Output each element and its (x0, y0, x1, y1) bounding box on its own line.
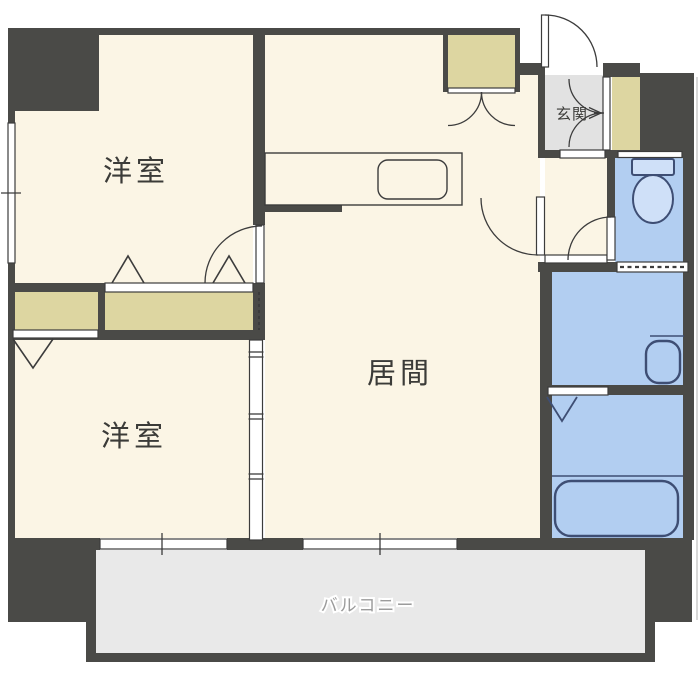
bathroom-sill (548, 387, 608, 395)
shoe-closet-front (603, 77, 610, 150)
wall-segment (253, 35, 265, 225)
closet-right (105, 292, 253, 330)
balcony-wall-bottom (86, 653, 655, 662)
shoe-closet (612, 77, 640, 150)
entrance-label: 玄関 (556, 106, 588, 123)
wall-segment (540, 272, 552, 538)
toilet-door-leaf (607, 217, 615, 260)
living-room-label: 居間 (367, 358, 433, 390)
bedroom-door-leaf (256, 225, 264, 283)
wall-segment (98, 292, 105, 330)
wall-segment (515, 28, 520, 92)
sliding-door-partition (249, 340, 264, 540)
window-bottom-left (100, 539, 227, 549)
living-room-door-leaf (537, 197, 545, 255)
wall-segment (645, 540, 692, 622)
toilet-sill (618, 152, 682, 158)
toilet-icon (633, 175, 673, 223)
wall-segment (8, 35, 15, 123)
kitchen-sink-icon (378, 160, 447, 199)
balcony-label: バルコニー (321, 596, 416, 615)
bathroom-floor (552, 395, 683, 538)
closet-left-sill (13, 330, 98, 338)
wall-segment (8, 28, 99, 111)
floor-plan-svg: 洋室 洋室 居間 玄関 バルコニー (0, 0, 700, 700)
closet-top (448, 35, 515, 88)
living-room-floor (265, 35, 540, 538)
living-room-floor-patch (520, 75, 540, 95)
wall-segment (8, 538, 88, 622)
floor-plan-page: 洋室 洋室 居間 玄関 バルコニー (0, 0, 700, 700)
room-label-top-left: 洋室 (103, 155, 169, 188)
toilet-tank (632, 159, 674, 175)
entrance-step-sill (560, 150, 605, 158)
wall-segment (603, 63, 640, 77)
wall-segment (227, 538, 303, 550)
wall-segment (640, 73, 694, 150)
sliding-door-track (250, 340, 263, 540)
wall-segment (8, 283, 105, 292)
entrance-door-leaf (542, 15, 549, 67)
kitchen-counter (265, 153, 462, 205)
balcony-wall-right (645, 622, 655, 662)
wall-segment (538, 63, 545, 155)
floors (15, 35, 683, 653)
wall-segment (683, 150, 694, 540)
hallway-floor (545, 158, 607, 262)
wall-segment (8, 263, 15, 340)
hallway-sill (545, 255, 607, 263)
wall-segment (443, 28, 448, 92)
wall-segment (88, 538, 100, 550)
closet-left (15, 292, 98, 330)
door-swing-arc (545, 15, 597, 67)
closet-right-sill (105, 283, 253, 292)
washroom-floor (552, 272, 683, 385)
balcony-wall-left (86, 550, 96, 662)
room-label-bottom-left: 洋室 (101, 420, 167, 453)
wall-segment (8, 340, 15, 538)
